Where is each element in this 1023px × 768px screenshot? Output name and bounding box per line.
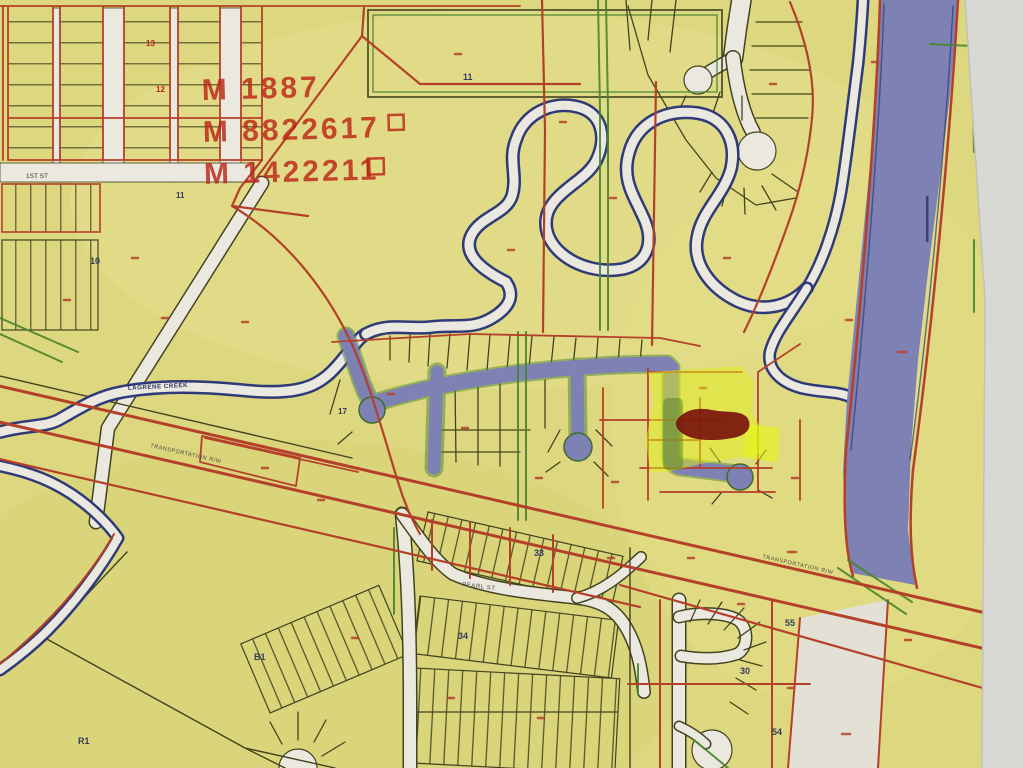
stamp-line-3: M 1422211: [204, 153, 380, 191]
lot-column: [8, 8, 53, 160]
stamp-line-2: M 8822617: [202, 111, 380, 149]
district-label: 33: [534, 548, 544, 558]
street: [53, 8, 60, 182]
stamp-line-1: M 1887: [201, 71, 320, 107]
district-label: 12: [156, 85, 165, 94]
district-label: 34: [458, 631, 468, 641]
lot-block: [2, 240, 98, 330]
scanned-plat-map: M 1887 M 8822617 M 1422211 1ST ST PEARL …: [0, 0, 1023, 768]
highlighted-road-segment: [663, 398, 683, 470]
street: [103, 8, 124, 182]
district-label: 17: [338, 407, 347, 416]
street-label-first-st: 1ST ST: [26, 173, 48, 180]
district-label: 55: [785, 618, 795, 628]
cul-de-sac: [684, 66, 712, 94]
lot-column: [124, 8, 170, 160]
red-marker-scribble: [680, 413, 746, 436]
district-label: 54: [772, 727, 782, 737]
district-label: 10: [90, 256, 100, 266]
district-label: 11: [463, 72, 473, 82]
highlight-patch: [744, 424, 780, 462]
district-label: B1: [254, 652, 266, 662]
plat-map-image: M 1887 M 8822617 M 1422211 1ST ST PEARL …: [0, 0, 1023, 768]
canal-label-mark: [926, 196, 929, 242]
street: [170, 8, 178, 182]
district-label: 30: [740, 666, 750, 676]
lot-block: [2, 184, 100, 232]
cul-de-sac: [738, 132, 776, 170]
lot-block-south: [410, 668, 620, 768]
lot-column: [60, 8, 103, 160]
street-north: [733, 0, 742, 58]
blue-cul-de-sac: [564, 433, 592, 461]
blue-cul-de-sac: [359, 397, 385, 423]
district-label: 11: [176, 191, 185, 200]
district-label: 13: [146, 39, 155, 48]
district-label: R1: [78, 736, 90, 746]
